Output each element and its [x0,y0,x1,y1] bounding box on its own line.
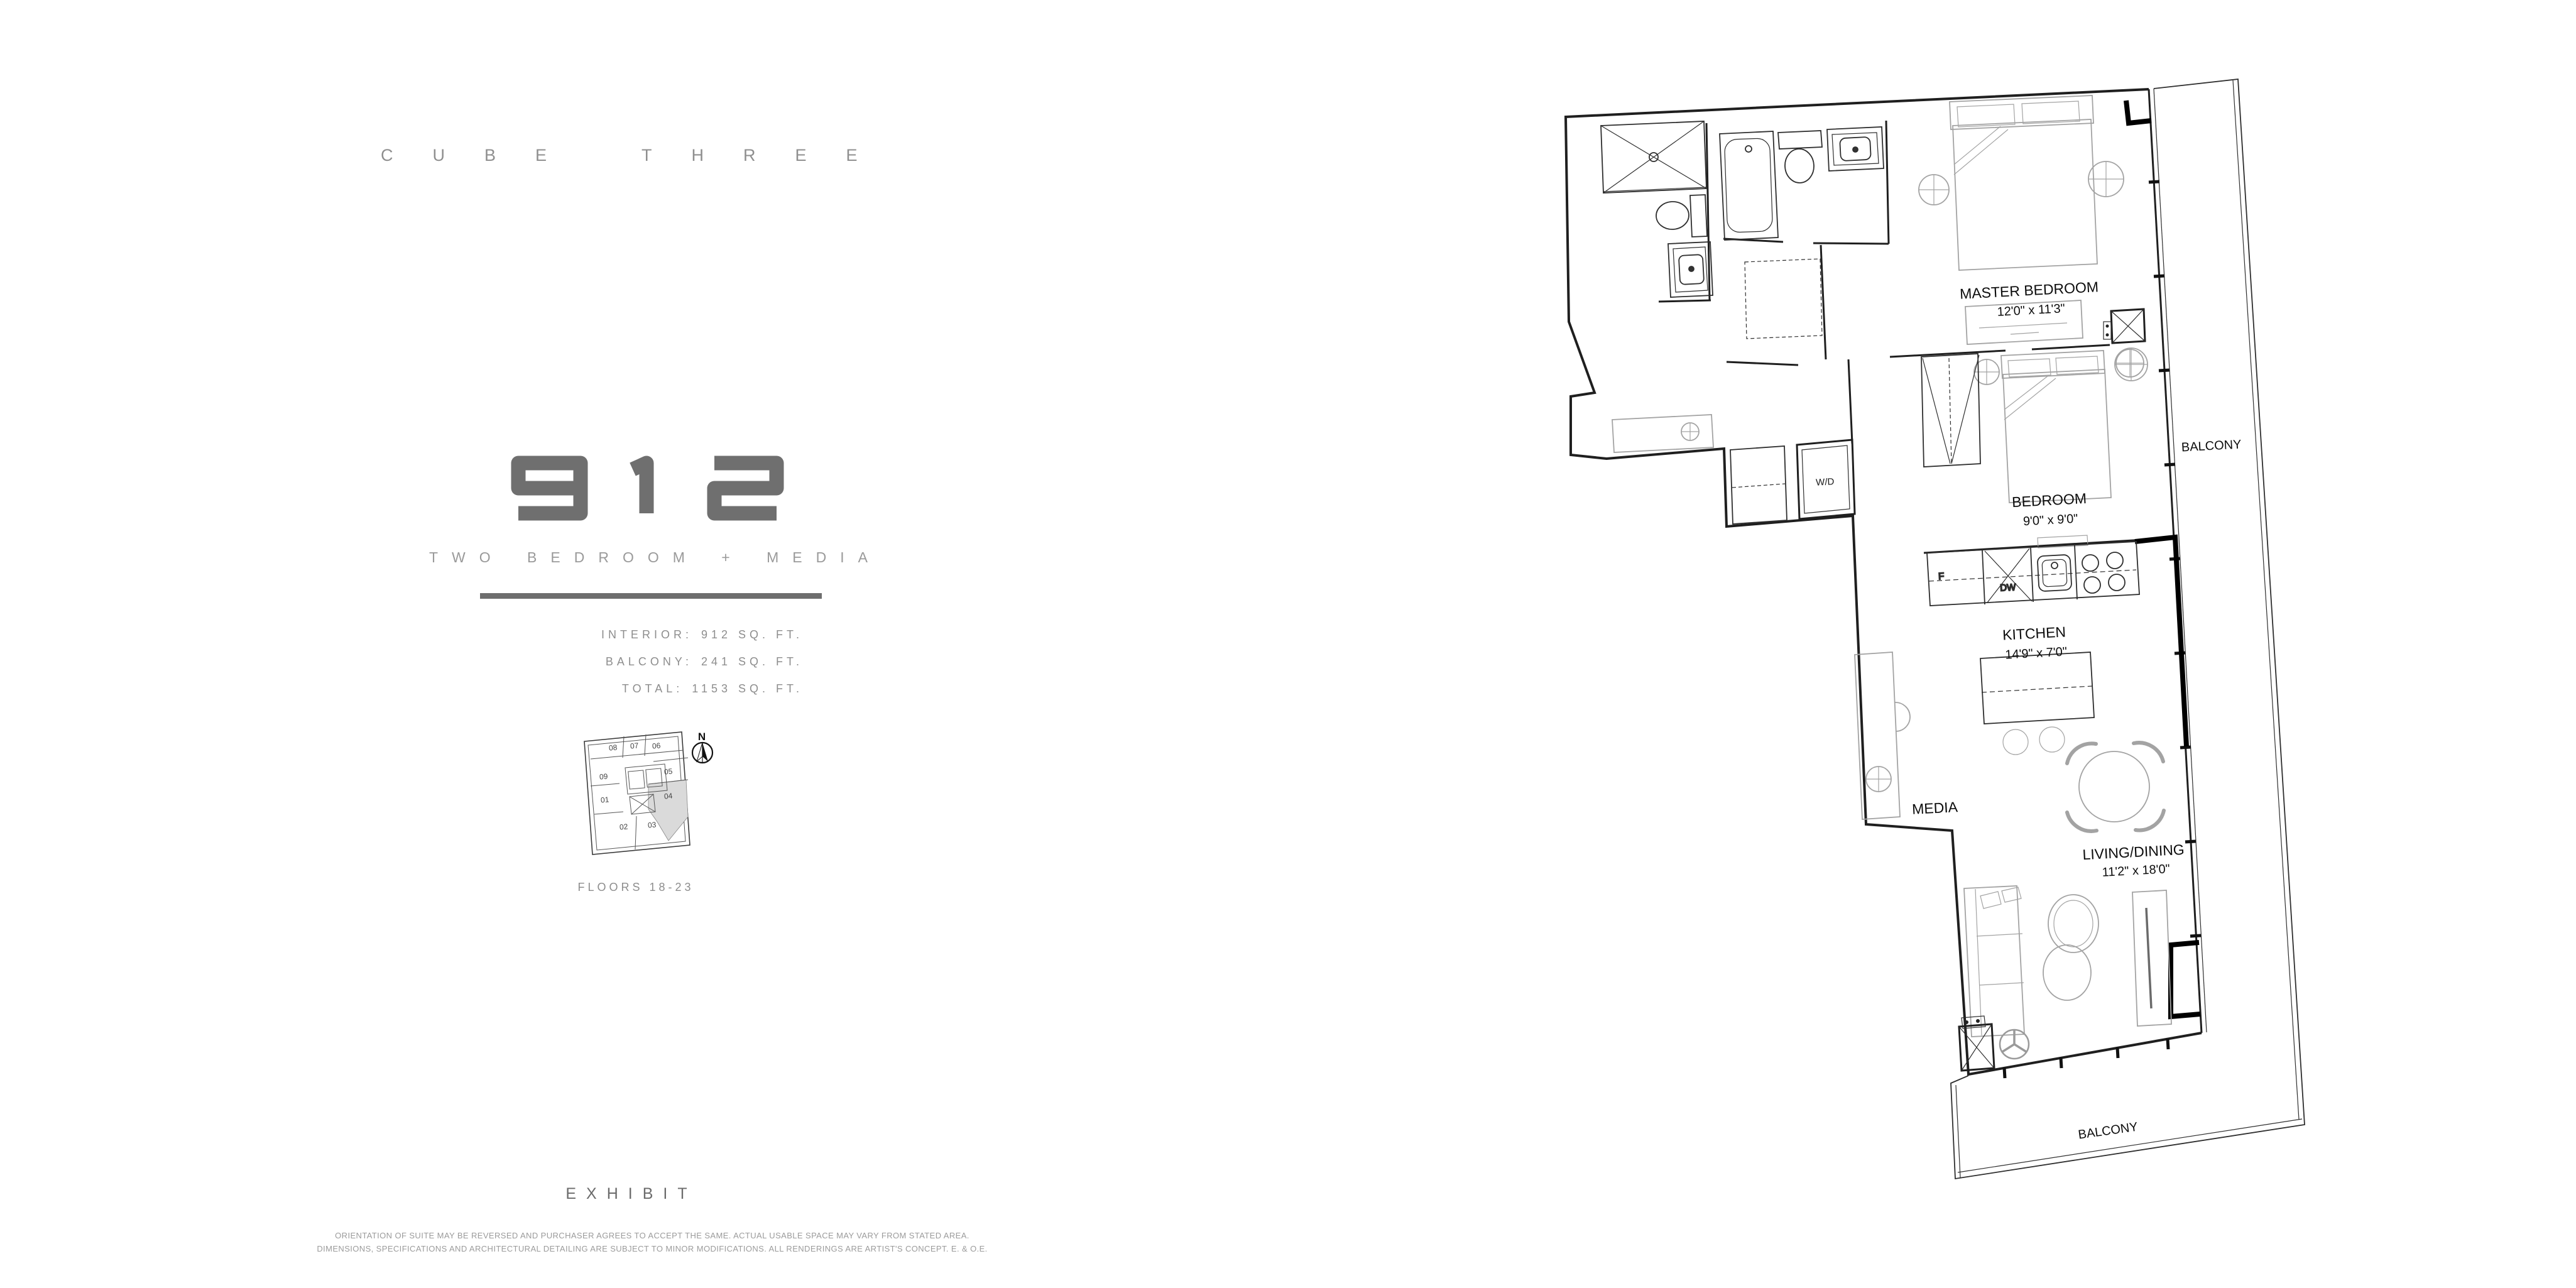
highlighted-unit-04 [648,780,688,841]
area-stats: INTERIOR:912 SQ. FT. BALCONY:241 SQ. FT.… [515,621,803,702]
unit-type: TWO BEDROOM + MEDIA [429,549,881,566]
master-bedroom-label: MASTER BEDROOM [1960,278,2099,302]
svg-text:06: 06 [652,741,661,750]
artwork-layer: 08 07 06 09 05 01 04 02 03 N [0,0,2576,1288]
living-dining-label: LIVING/DINING [2082,841,2185,863]
bathtub [1720,131,1778,240]
bedroom-closet [1921,354,1980,467]
kitchen-end-wall [2135,537,2186,746]
kitchen-counter: F DW [1927,542,2139,606]
entry-console [1612,415,1713,452]
svg-text:01: 01 [600,795,609,804]
wic-shelving [1745,259,1822,339]
disclaimer-line-2: DIMENSIONS, SPECIFICATIONS AND ARCHITECT… [275,1242,1029,1255]
vanity-1 [1827,127,1884,171]
floors-range: FLOORS 18-23 [542,881,730,894]
floor-plan: W/D [1566,79,2305,1179]
unit-outline [1566,89,2202,1074]
digit-9 [518,463,581,513]
stat-value: 1153 SQ. FT. [692,682,803,695]
living-balcony-door [2171,942,2200,1017]
lounge-chairs [2043,895,2098,1000]
stat-row-total: TOTAL:1153 SQ. FT. [515,675,803,702]
stat-value: 912 SQ. FT. [701,628,803,641]
stat-row-balcony: BALCONY:241 SQ. FT. [515,648,803,675]
toilet-2 [1656,195,1707,237]
digit-1 [633,463,647,513]
bedroom-dims: 9'0" x 9'0" [2022,512,2078,529]
toilet-1 [1778,131,1822,183]
kitchen-island [1980,652,2094,755]
north-arrow-icon: N [692,731,712,763]
svg-text:09: 09 [599,772,608,781]
shower [1601,121,1706,193]
bedroom-label: BEDROOM [2012,490,2087,510]
divider-rule [480,593,822,599]
svg-text:N: N [698,731,706,743]
disclaimer: ORIENTATION OF SUITE MAY BE REVERSED AND… [275,1229,1029,1255]
living-dining-dims: 11'2" x 18'0" [2102,862,2170,880]
media-label: MEDIA [1912,799,1959,817]
svg-text:03: 03 [647,820,657,829]
stat-value: 241 SQ. FT. [701,655,803,668]
stat-label: INTERIOR: [601,628,692,641]
master-bedroom-dims: 12'0" x 11'3" [1997,302,2065,319]
partition-walls [1603,121,2154,553]
vanity-2 [1668,242,1713,297]
kitchen-label: KITCHEN [2002,623,2066,643]
digit-2 [714,463,777,513]
balcony-right-label: BALCONY [2181,438,2242,455]
svg-text:02: 02 [619,822,628,831]
dishwasher-label: DW [2000,582,2017,593]
bedroom-bedside-lights [1974,348,2148,385]
balcony-bottom-label: BALCONY [2077,1120,2139,1142]
tv-console [2132,890,2171,1026]
washer-dryer-closet: W/D [1797,440,1855,519]
disclaimer-line-1: ORIENTATION OF SUITE MAY BE REVERSED AND… [275,1229,1029,1242]
master-balcony-door [2126,101,2151,123]
dining-set [2067,743,2164,831]
master-ceiling-light [2116,349,2144,377]
svg-text:08: 08 [608,743,618,752]
page: CUBE THREE [0,0,2576,1288]
sofa [1964,886,2024,1037]
fridge-label: F [1938,571,1945,582]
key-plan: 08 07 06 09 05 01 04 02 03 N [584,731,712,854]
master-bedside-lights [1919,161,2124,205]
svg-text:07: 07 [630,741,639,750]
foyer-closet [1730,446,1787,524]
stat-label: TOTAL: [622,682,683,695]
master-bed [1950,96,2097,270]
svg-text:05: 05 [663,767,673,776]
master-closet-shaft [2104,309,2145,343]
ceiling-fan-icon [2000,1030,2029,1059]
svg-text:04: 04 [663,791,673,800]
stat-label: BALCONY: [606,655,692,668]
stat-row-interior: INTERIOR:912 SQ. FT. [515,621,803,648]
exhibit-title: EXHIBIT [506,1185,757,1203]
wd-label: W/D [1816,476,1835,488]
bedroom-bed [2001,351,2111,503]
kitchen-dims: 14'9" x 7'0" [2005,645,2068,662]
unit-number [518,463,777,513]
